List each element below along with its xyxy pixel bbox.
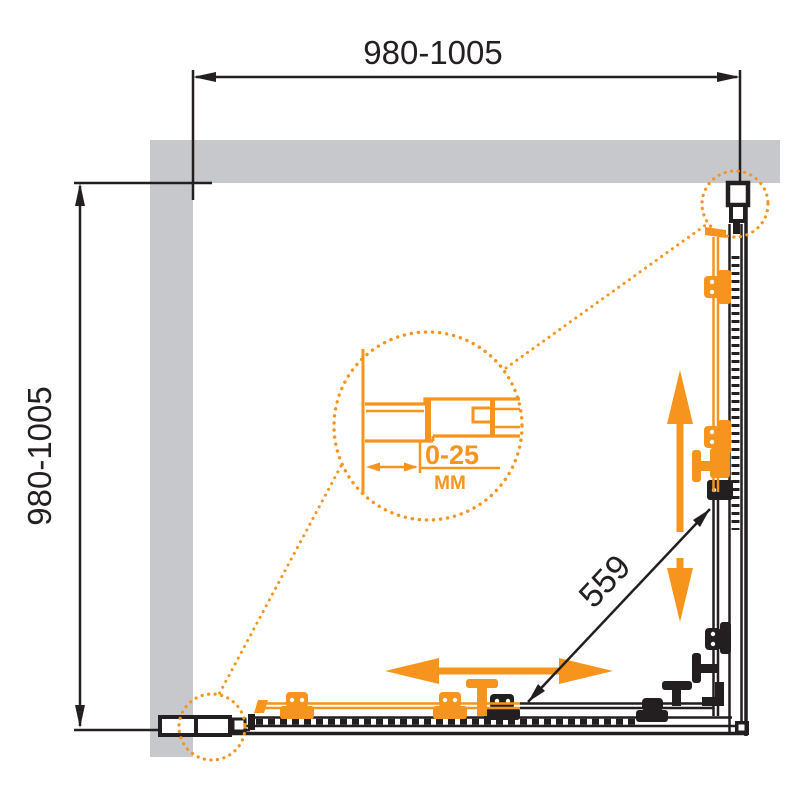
corner-elbow — [715, 682, 724, 706]
arrow-shaft — [677, 420, 684, 532]
handle-stem — [477, 688, 487, 716]
roller-body — [704, 426, 720, 448]
roller-base — [720, 622, 731, 654]
arrowhead-top — [75, 183, 85, 206]
roller-dot — [710, 290, 714, 294]
top-dimension-label: 980-1005 — [363, 34, 502, 71]
handle-stem — [701, 461, 719, 471]
orange-door-bottom — [254, 679, 520, 719]
technical-drawing-page: 980-1005 980-1005 — [0, 0, 800, 787]
handle-cap — [466, 679, 498, 688]
roller-dot — [710, 430, 714, 434]
vertical-slide-arrow — [667, 370, 693, 622]
leader-to-top-right — [506, 224, 707, 368]
roller-dot — [711, 632, 715, 636]
door-top-cap — [705, 227, 726, 238]
door-bracket — [707, 480, 733, 500]
roller-body — [642, 698, 663, 711]
knob-stem — [701, 664, 717, 673]
black-door-bottom — [484, 681, 724, 722]
profile-inner — [731, 205, 745, 221]
arrowhead-left — [193, 72, 216, 82]
knob-stem — [672, 690, 681, 706]
roller-dot — [443, 698, 447, 702]
profile-divider — [425, 399, 431, 441]
shower-plan-drawing: 980-1005 980-1005 — [0, 0, 800, 787]
roller-dot — [710, 440, 714, 444]
arrowhead-right — [717, 72, 740, 82]
double-arrow-vertical — [667, 370, 693, 424]
roller-body — [704, 276, 720, 298]
rail-end-cap — [248, 714, 255, 730]
black-door-right — [692, 480, 733, 716]
knob-cap — [692, 653, 701, 683]
roller-dot — [711, 642, 715, 646]
wall-left — [150, 183, 193, 757]
roller-dot — [290, 698, 294, 702]
roller-dot — [300, 698, 304, 702]
roller-dot — [453, 698, 457, 702]
wall-top — [150, 140, 780, 183]
roller-body — [286, 692, 308, 708]
knob-cap — [662, 681, 692, 690]
leader-to-bottom-left — [218, 466, 341, 696]
frame-right-rail — [730, 185, 747, 736]
detail-range-label: 0-25 — [425, 440, 479, 470]
double-arrow-vertical — [667, 568, 693, 622]
left-dimension-label: 980-1005 — [21, 386, 58, 525]
wall-profile-bottom-left — [160, 714, 255, 735]
corner-post-cavity — [739, 725, 745, 731]
handle-cap — [692, 450, 701, 482]
profile-stub — [733, 221, 740, 234]
roller-base — [636, 710, 668, 722]
arrowhead-bottom — [75, 705, 85, 728]
roller-base — [484, 708, 520, 720]
roller-body — [439, 692, 461, 708]
profile-outer — [728, 183, 748, 205]
profile-notch — [233, 719, 245, 731]
arrow-shaft — [437, 668, 565, 675]
detail-callout: 0-25 ММ — [334, 332, 522, 520]
diagonal-dimension-label: 559 — [572, 548, 638, 615]
double-arrow-horizontal — [385, 658, 439, 684]
horizontal-slide-arrow — [385, 658, 613, 684]
roller-body — [705, 628, 721, 650]
detail-unit-label: ММ — [434, 473, 466, 494]
door-end-cap — [254, 700, 268, 713]
profile-divider — [490, 399, 495, 436]
orange-door-right — [692, 227, 731, 492]
roller-dot — [710, 280, 714, 284]
